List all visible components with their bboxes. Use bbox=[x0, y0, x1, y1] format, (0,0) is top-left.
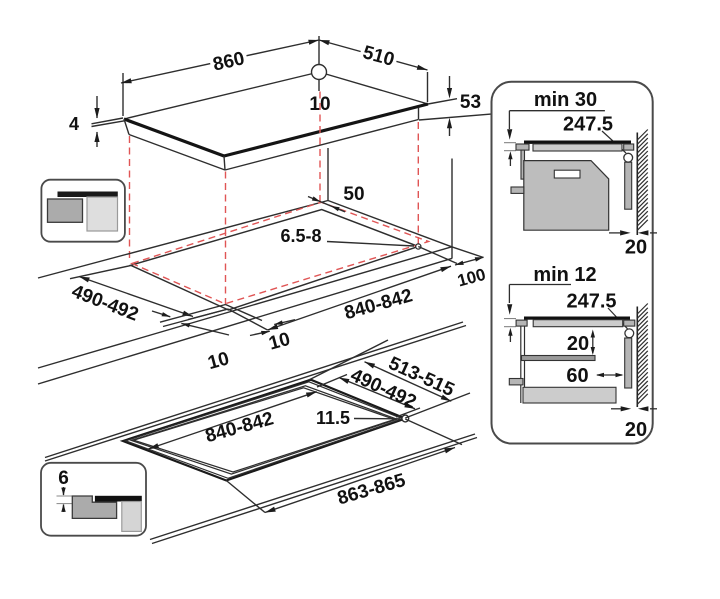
svg-text:860: 860 bbox=[211, 48, 246, 75]
svg-text:510: 510 bbox=[360, 42, 396, 71]
svg-text:6: 6 bbox=[58, 468, 69, 489]
svg-text:4: 4 bbox=[69, 114, 79, 134]
svg-text:10: 10 bbox=[206, 348, 232, 374]
svg-text:20: 20 bbox=[567, 333, 589, 355]
svg-text:10: 10 bbox=[267, 329, 293, 355]
svg-text:min 30: min 30 bbox=[534, 89, 597, 111]
svg-text:60: 60 bbox=[566, 365, 588, 387]
svg-text:11.5: 11.5 bbox=[316, 408, 350, 428]
svg-text:20: 20 bbox=[625, 419, 647, 441]
svg-text:53: 53 bbox=[460, 92, 481, 113]
svg-text:100: 100 bbox=[455, 265, 487, 291]
svg-text:490-492: 490-492 bbox=[69, 281, 142, 326]
svg-text:min 12: min 12 bbox=[533, 264, 596, 286]
svg-text:20: 20 bbox=[625, 237, 647, 259]
svg-text:247.5: 247.5 bbox=[563, 113, 613, 135]
svg-text:50: 50 bbox=[343, 184, 364, 205]
svg-text:6.5-8: 6.5-8 bbox=[280, 226, 321, 246]
